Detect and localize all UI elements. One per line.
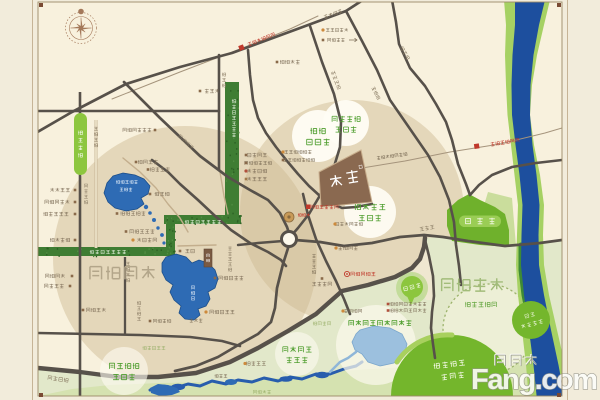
- svg-text:Fang.com: Fang.com: [471, 364, 597, 396]
